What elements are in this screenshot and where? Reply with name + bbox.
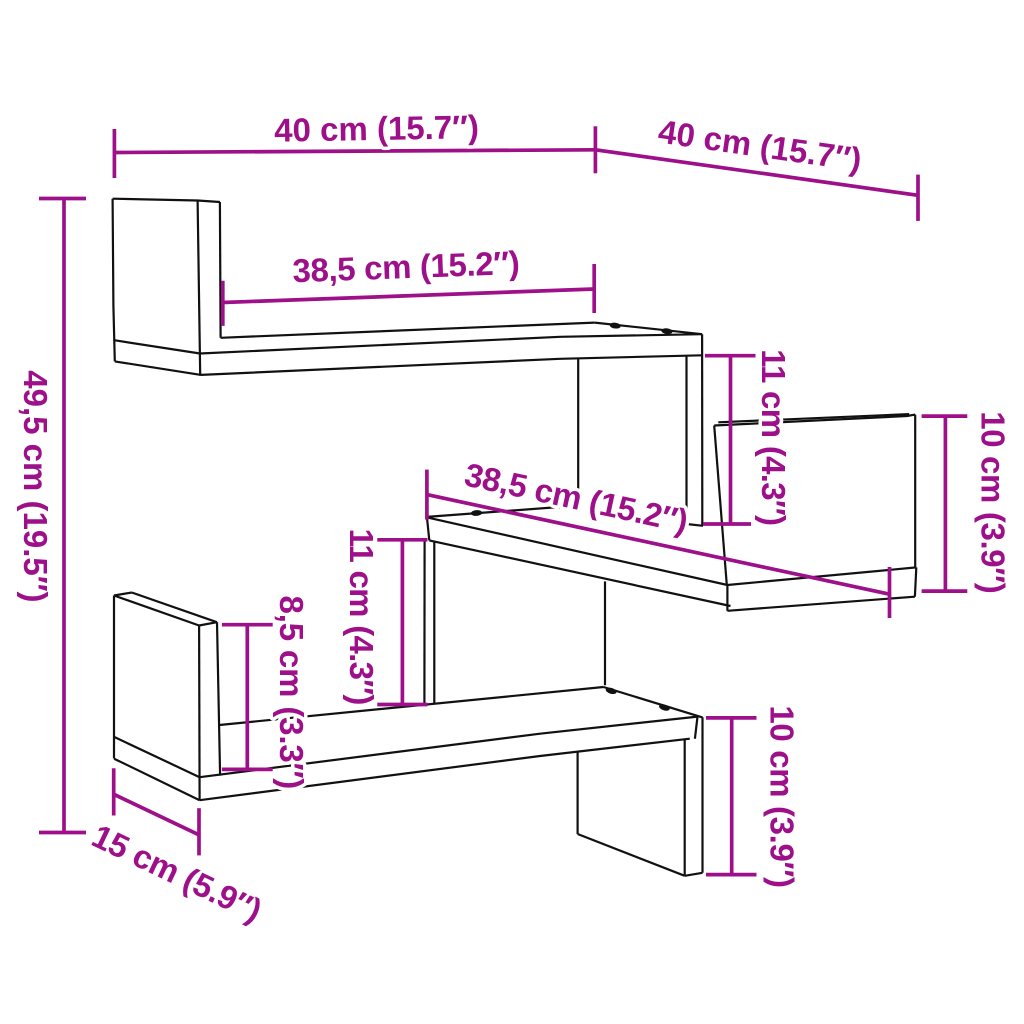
svg-text:49,5 cm (19.5″): 49,5 cm (19.5″) <box>17 370 54 602</box>
svg-text:11 cm (4.3″): 11 cm (4.3″) <box>755 349 792 525</box>
svg-text:11 cm (4.3″): 11 cm (4.3″) <box>343 529 380 705</box>
svg-text:8,5 cm (3.3″): 8,5 cm (3.3″) <box>273 595 310 789</box>
svg-text:10 cm (3.9″): 10 cm (3.9″) <box>974 411 1011 593</box>
svg-text:10 cm (3.9″): 10 cm (3.9″) <box>763 705 800 887</box>
svg-text:40 cm (15.7″): 40 cm (15.7″) <box>274 108 479 149</box>
